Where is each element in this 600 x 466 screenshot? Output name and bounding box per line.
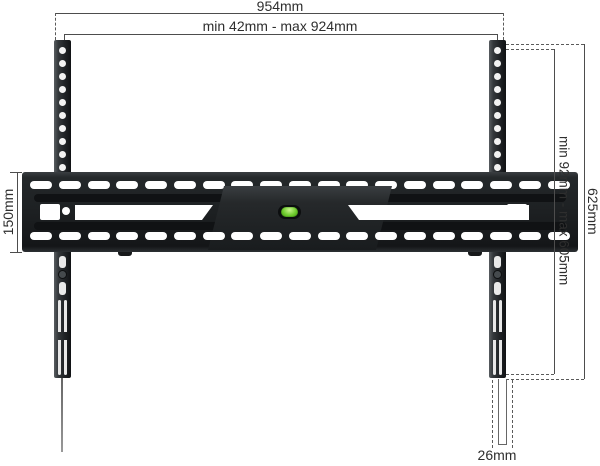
bracket-tab-left xyxy=(118,252,132,256)
rail-hole xyxy=(59,112,66,119)
left-rail-pull-string xyxy=(61,378,63,452)
rail-lower-slot xyxy=(493,300,496,375)
mounting-slot xyxy=(433,232,455,240)
bracket-hole-right xyxy=(493,207,501,215)
mounting-slot xyxy=(519,181,541,189)
dim-right-range-connector-bottom xyxy=(506,374,554,375)
rail-clamp-slot xyxy=(59,256,66,268)
dim-right-outer-label: 625mm xyxy=(585,66,600,356)
rail-hole xyxy=(494,60,501,67)
dim-left-height-line xyxy=(17,172,18,252)
rail-hole xyxy=(494,112,501,119)
dim-rod-width-label: 26mm xyxy=(467,448,527,462)
dim-right-range-line xyxy=(554,49,555,374)
mounting-slot xyxy=(88,181,110,189)
mounting-slot xyxy=(519,232,541,240)
wall-mount-dimension-diagram: 954mm min 42mm - max 924mm xyxy=(0,0,600,466)
bracket-hole-left xyxy=(62,207,70,215)
rail-hole xyxy=(494,47,501,54)
mounting-slot xyxy=(404,181,426,189)
bubble-level-icon xyxy=(281,207,298,217)
mounting-slot xyxy=(375,232,397,240)
dim-top-range-line xyxy=(64,34,497,35)
bracket-slot-row-bottom xyxy=(30,232,570,240)
rail-hole xyxy=(59,164,66,171)
dim-rod-guide-left xyxy=(492,380,493,448)
rail-hole xyxy=(494,164,501,171)
rail-hole xyxy=(59,60,66,67)
rail-hole xyxy=(59,151,66,158)
rail-clamp-slot xyxy=(494,282,501,295)
rail-hole xyxy=(494,151,501,158)
dim-top-outer-label: 954mm xyxy=(180,0,380,13)
dim-right-outer-connector-bottom xyxy=(506,379,584,380)
rail-lower-slot xyxy=(58,300,61,375)
mounting-slot xyxy=(203,232,225,240)
mounting-slot xyxy=(461,181,483,189)
mounting-slot xyxy=(318,232,340,240)
dim-top-outer-line xyxy=(55,13,503,14)
dim-top-outer-extension-left xyxy=(55,13,56,40)
mounting-slot xyxy=(59,232,81,240)
bracket-long-cutout-left xyxy=(72,205,213,220)
rail-hole xyxy=(494,125,501,132)
right-rail-holes xyxy=(489,47,506,171)
rail-hole xyxy=(59,47,66,54)
mounting-slot xyxy=(289,232,311,240)
mounting-slot xyxy=(461,232,483,240)
rail-hole xyxy=(494,73,501,80)
dim-right-outer-connector-top xyxy=(506,44,584,45)
mounting-slot xyxy=(145,181,167,189)
mounting-slot xyxy=(145,232,167,240)
dim-left-height-tick-bottom xyxy=(10,252,22,253)
dim-rod-guide-right xyxy=(512,380,513,448)
mounting-slot xyxy=(203,181,225,189)
right-rail-rod xyxy=(498,379,507,445)
mounting-slot xyxy=(490,232,512,240)
mounting-slot xyxy=(490,181,512,189)
dim-top-outer-extension-right xyxy=(503,13,504,40)
rail-lower-slot xyxy=(64,300,67,375)
mounting-slot xyxy=(433,181,455,189)
bracket-long-cutout-right xyxy=(348,205,532,220)
mounting-slot xyxy=(260,232,282,240)
rail-clamp-slot xyxy=(59,282,66,295)
rail-hole xyxy=(59,73,66,80)
mounting-slot xyxy=(404,232,426,240)
dim-right-range-connector-top xyxy=(506,49,554,50)
mounting-slot xyxy=(231,232,253,240)
dim-top-range-label: min 42mm - max 924mm xyxy=(180,19,380,33)
rail-hole xyxy=(59,138,66,145)
rail-hole xyxy=(59,125,66,132)
rail-lower-slot xyxy=(499,300,502,375)
rail-hole xyxy=(494,86,501,93)
rail-hole xyxy=(59,99,66,106)
mounting-slot xyxy=(88,232,110,240)
mounting-slot xyxy=(174,232,196,240)
bracket-square-cutout-right xyxy=(507,204,527,220)
rail-hole xyxy=(494,138,501,145)
rail-hole xyxy=(494,99,501,106)
mounting-slot xyxy=(116,181,138,189)
rail-clamp-slot xyxy=(494,256,501,268)
mounting-slot xyxy=(116,232,138,240)
mounting-slot xyxy=(30,181,52,189)
tv-bracket-bar xyxy=(22,172,578,252)
rail-lock-knob xyxy=(58,270,67,279)
rail-lock-knob xyxy=(493,270,502,279)
left-rail-holes xyxy=(54,47,71,171)
dim-right-range-label: min 92mm - max 605mm xyxy=(556,66,572,356)
rail-hole xyxy=(59,86,66,93)
mounting-slot xyxy=(30,232,52,240)
mounting-slot xyxy=(174,181,196,189)
mounting-slot xyxy=(346,232,368,240)
mounting-slot xyxy=(59,181,81,189)
bracket-square-cutout-left xyxy=(40,204,60,220)
bracket-tab-right xyxy=(468,252,482,256)
dim-left-height-tick-top xyxy=(10,172,22,173)
dim-left-height-label: 150mm xyxy=(0,184,16,240)
